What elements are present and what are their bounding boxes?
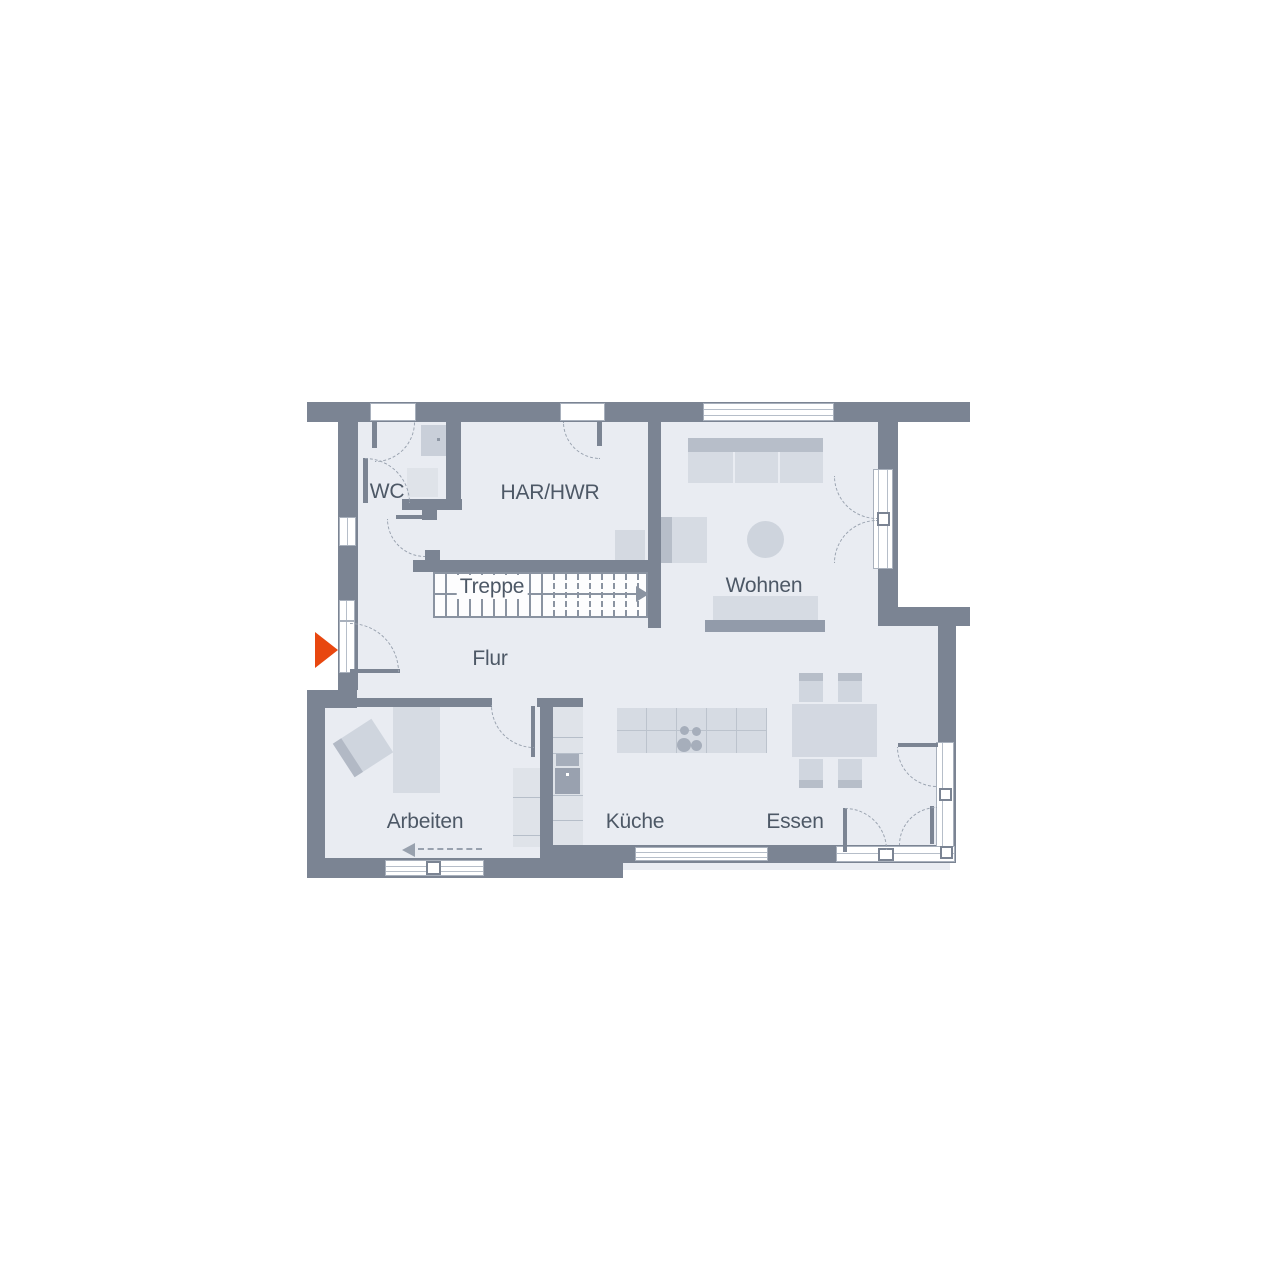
glazing-line bbox=[636, 857, 767, 858]
dining-table bbox=[792, 704, 877, 757]
window-handle bbox=[939, 788, 952, 801]
glazing-line bbox=[704, 415, 833, 416]
glazing-line bbox=[942, 743, 943, 860]
wall-jamb-stairs bbox=[425, 550, 440, 560]
wall-kueche-left bbox=[540, 698, 553, 858]
washing-machine bbox=[615, 530, 645, 562]
dining-chair bbox=[799, 673, 823, 702]
glazing-line bbox=[346, 622, 347, 672]
wardrobe-divider bbox=[513, 835, 543, 836]
door-opening-har-top bbox=[560, 403, 605, 421]
room-label-arbeiten: Arbeiten bbox=[387, 810, 464, 834]
window-handle bbox=[426, 861, 441, 875]
cooktop-burner bbox=[692, 727, 701, 736]
dining-chair bbox=[799, 759, 823, 788]
stair-tread-dashed bbox=[589, 574, 591, 616]
french-window-essen-right bbox=[936, 742, 954, 861]
wall-arbeiten-top bbox=[325, 698, 492, 707]
room-label-har-hwr: HAR/HWR bbox=[501, 481, 600, 505]
room-label-wohnen: Wohnen bbox=[726, 574, 803, 598]
unit-divider bbox=[552, 820, 583, 821]
room-label-essen: Essen bbox=[766, 810, 823, 834]
direction-arrow-icon bbox=[402, 843, 415, 857]
stair-tread-dashed bbox=[565, 574, 567, 616]
glazing-line bbox=[347, 518, 348, 545]
stair-tread bbox=[541, 574, 543, 616]
wall-wc-east bbox=[446, 422, 461, 502]
stair-tread bbox=[445, 574, 447, 616]
cooktop-burner bbox=[680, 726, 689, 735]
desk bbox=[393, 706, 440, 793]
loggia-outside bbox=[898, 422, 970, 607]
oven bbox=[555, 768, 580, 794]
glazing-line bbox=[837, 853, 954, 854]
wall-exterior-left-lower bbox=[307, 690, 325, 878]
window-top bbox=[703, 403, 834, 421]
stair-tread-dashed bbox=[577, 574, 579, 616]
glazing-line bbox=[346, 601, 347, 620]
sofa-cushion-divider bbox=[778, 452, 780, 483]
window-kueche-bottom bbox=[635, 847, 768, 861]
unit-divider bbox=[552, 795, 583, 796]
wall-stairs-top bbox=[413, 560, 661, 572]
wall-har-wohnen-divider bbox=[648, 422, 661, 628]
armchair-backrest bbox=[660, 517, 672, 563]
dining-chair bbox=[838, 759, 862, 788]
coffee-table-round bbox=[747, 521, 784, 558]
sideboard-base bbox=[705, 620, 825, 632]
floor-plan: WC HAR/HWR Treppe Wohnen Flur Arbeiten K… bbox=[0, 0, 1280, 1280]
room-label-wc: WC bbox=[370, 480, 405, 504]
dining-chair bbox=[838, 673, 862, 702]
unit-divider bbox=[552, 737, 583, 738]
direction-arrow-line bbox=[418, 848, 482, 850]
door-opening-wc-top bbox=[370, 403, 416, 421]
wardrobe bbox=[513, 768, 543, 847]
wall-wc-south bbox=[402, 499, 462, 510]
wardrobe-divider bbox=[513, 797, 543, 798]
sofa-seat bbox=[688, 452, 823, 483]
stair-tread-dashed bbox=[601, 574, 603, 616]
sofa-cushion-divider bbox=[733, 452, 735, 483]
stair-tread bbox=[529, 574, 531, 616]
room-label-treppe: Treppe bbox=[457, 575, 528, 599]
corner-post-handle bbox=[940, 846, 953, 859]
room-label-flur: Flur bbox=[472, 647, 507, 671]
sofa-backrest bbox=[688, 438, 823, 452]
basin-tap bbox=[437, 438, 440, 441]
oven-knob bbox=[566, 773, 569, 776]
window-left-nook bbox=[339, 517, 356, 546]
toilet bbox=[407, 468, 438, 497]
glazing-line bbox=[704, 409, 833, 410]
microwave bbox=[556, 754, 579, 766]
stair-tread-dashed bbox=[625, 574, 627, 616]
armchair-seat bbox=[672, 517, 707, 563]
glazing-line bbox=[636, 852, 767, 853]
wall-exterior-loggia-jog bbox=[878, 607, 970, 626]
stair-tread-dashed bbox=[613, 574, 615, 616]
stair-tread-dashed bbox=[553, 574, 555, 616]
cooktop-burner bbox=[691, 740, 702, 751]
entrance-arrow-icon bbox=[315, 632, 338, 668]
cooktop-burner bbox=[677, 738, 691, 752]
window-handle bbox=[877, 512, 890, 526]
sideboard bbox=[713, 596, 818, 620]
room-label-kueche: Küche bbox=[606, 810, 665, 834]
sidelight-entrance bbox=[339, 600, 355, 621]
washbasin bbox=[421, 425, 449, 456]
